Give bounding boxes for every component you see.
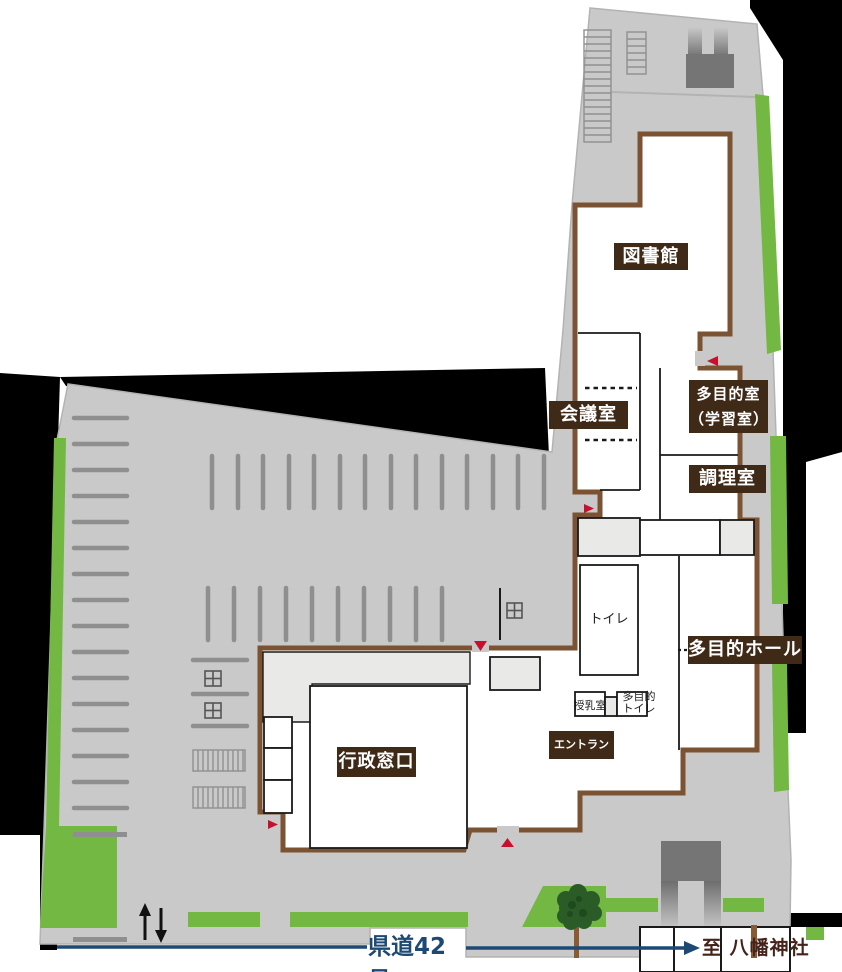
label-cooking-room: 調理室 xyxy=(689,465,766,493)
label-admin-counter: 行政窓口 xyxy=(337,747,416,777)
label-road-destination: 至 八幡神社 xyxy=(702,933,822,960)
label-multipurpose-room: 多目的室 （学習室） xyxy=(689,380,768,433)
label-nursing-room: 授乳室 xyxy=(570,697,610,713)
site-plan: 図書館 会議室 多目的室 （学習室） 調理室 多目的ホール エントランス 行政窓… xyxy=(0,0,842,972)
label-meeting-room: 会議室 xyxy=(549,401,628,429)
label-accessible-toilet: 多目的 トイレ xyxy=(613,691,665,715)
label-road-name: 県道42号 xyxy=(368,927,468,972)
label-multipurpose-hall: 多目的ホール xyxy=(688,636,802,664)
label-library: 図書館 xyxy=(614,243,688,270)
stairs-strip-short xyxy=(627,32,646,74)
label-multipurpose-room-line2: （学習室） xyxy=(689,407,768,432)
label-accessible-toilet-line2: トイレ xyxy=(613,703,665,715)
label-multipurpose-room-line1: 多目的室 xyxy=(689,382,768,407)
label-toilet: トイレ xyxy=(580,608,638,627)
label-entrance: エントランス xyxy=(549,731,614,759)
